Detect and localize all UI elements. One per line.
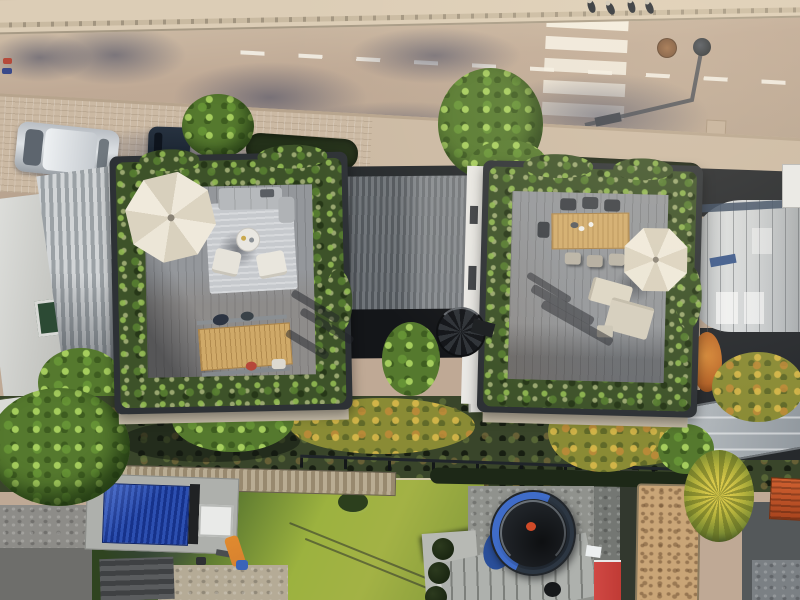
round-bush xyxy=(432,538,454,560)
shed-rooflight xyxy=(198,504,233,537)
dining-chair xyxy=(565,252,581,264)
stone-wall-left xyxy=(0,548,92,600)
table-item xyxy=(249,238,254,243)
parasol-hub xyxy=(167,214,175,222)
trampoline-shading xyxy=(496,496,570,570)
round-bush xyxy=(428,562,450,584)
parasol-hub xyxy=(652,256,660,264)
connector-sunlit-half xyxy=(341,175,478,311)
tableware-dark xyxy=(570,222,578,228)
manhole-cover xyxy=(657,38,677,58)
car-roof xyxy=(42,128,98,175)
fern-rays xyxy=(684,450,754,542)
trampoline xyxy=(490,490,576,576)
roof-skylight xyxy=(744,292,764,324)
patio-object-dark xyxy=(196,557,206,565)
patio-mid xyxy=(158,565,288,600)
curbside-object-blue xyxy=(2,68,12,74)
shed-blue-roof xyxy=(102,483,190,546)
tableware xyxy=(588,222,593,227)
curved-metal-roof xyxy=(694,200,800,332)
street-lamp-head xyxy=(693,38,711,56)
garden-steps xyxy=(99,557,174,600)
yellow-bushes-right xyxy=(712,352,800,422)
fire-bowl xyxy=(544,582,561,597)
right-terrace-building xyxy=(477,160,704,418)
dining-chair xyxy=(560,198,576,210)
orange-structure xyxy=(769,477,800,521)
roof-skylight xyxy=(716,292,738,324)
lounger xyxy=(255,250,287,280)
garden-cable xyxy=(289,522,429,580)
yellow-fern xyxy=(684,450,754,542)
sofa-throw xyxy=(260,189,274,197)
white-paper xyxy=(585,545,601,558)
lounger xyxy=(211,248,242,278)
dining-chair xyxy=(582,197,598,209)
dining-chair xyxy=(537,222,549,238)
tableware xyxy=(578,226,584,231)
facade-window xyxy=(468,266,477,290)
stone-block-br xyxy=(752,560,800,600)
car-windshield xyxy=(22,129,44,167)
red-cabinet xyxy=(594,560,621,600)
spiral-staircase xyxy=(430,303,492,361)
facade-window xyxy=(470,206,478,224)
roof-skylight xyxy=(752,228,772,254)
white-chair xyxy=(272,359,286,369)
street-tree-small xyxy=(182,94,254,158)
orange-slats xyxy=(770,478,800,520)
trampoline-toy-red xyxy=(526,522,536,531)
dining-chair xyxy=(604,199,620,211)
dining-chair xyxy=(587,255,603,267)
shed-roof-sheen xyxy=(103,484,189,545)
slide-base xyxy=(236,560,248,570)
garden-cable xyxy=(305,538,436,592)
connector-seam-roof xyxy=(341,175,478,311)
aerial-scene xyxy=(0,0,800,600)
lounge-chaise xyxy=(278,197,295,223)
left-terrace-building xyxy=(109,152,352,415)
table-item xyxy=(241,236,246,241)
rooftop-unit-white xyxy=(782,164,800,208)
curbside-object-red xyxy=(3,58,12,64)
timber-dining-table xyxy=(551,213,629,250)
